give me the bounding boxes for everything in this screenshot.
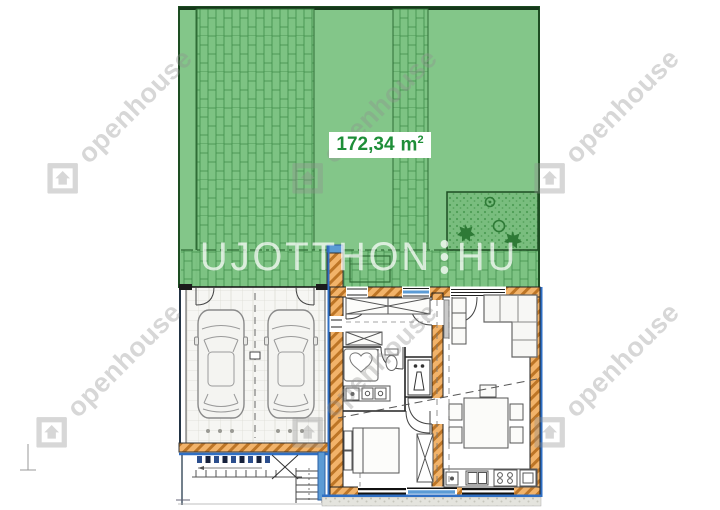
area-value: 172,34 <box>336 134 394 156</box>
wardrobe-icon <box>417 434 433 482</box>
bathtub-icon <box>344 349 378 381</box>
kitchen-counter-icon <box>444 469 537 487</box>
radiator-icon <box>444 300 449 338</box>
area-label: 172,34 m2 <box>329 132 431 158</box>
entry-closet-icon <box>346 298 430 345</box>
driveway-details <box>20 443 360 505</box>
stove-icon <box>494 470 517 486</box>
car-icon <box>265 310 318 418</box>
hall-cabinet-icon <box>444 298 466 344</box>
toilet-icon <box>385 349 398 371</box>
paved-path-wide <box>197 9 314 287</box>
car-icon <box>195 310 248 418</box>
bed-icon <box>344 428 399 473</box>
fence <box>192 455 302 479</box>
entry-door-opening <box>346 287 368 298</box>
floor-plan-drawing <box>0 0 720 510</box>
boiler-icon <box>408 360 430 395</box>
gravel-strip <box>322 496 541 506</box>
sofa-icon <box>484 295 537 357</box>
floorplan-image: openhouse openhouse openhouse openhouse … <box>0 0 720 510</box>
garden-bed <box>447 192 538 250</box>
area-unit: m2 <box>401 134 424 156</box>
sink-counter-icon <box>344 386 390 401</box>
